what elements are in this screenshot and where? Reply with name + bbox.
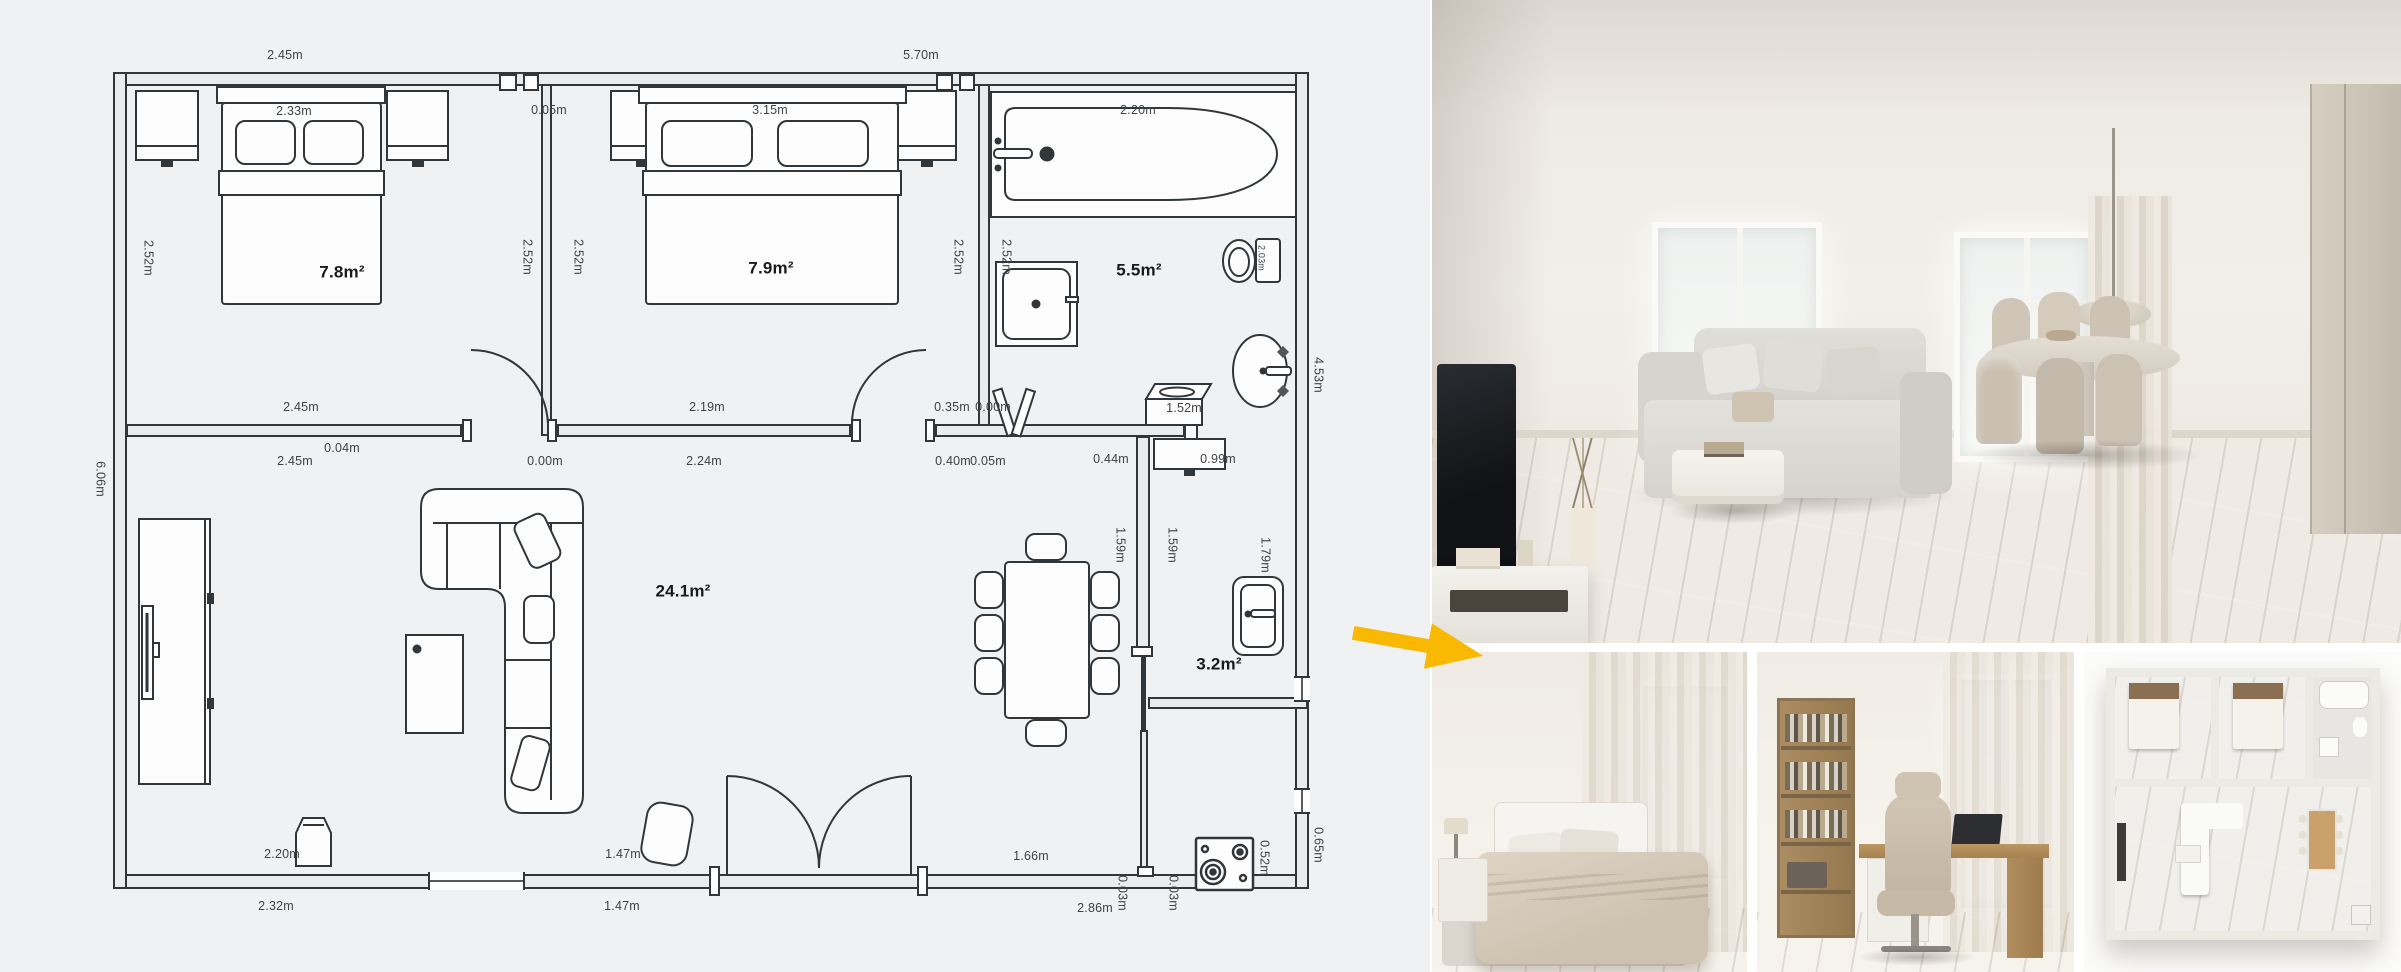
cabinet-seam [2344,84,2346,534]
desk-panel [2007,858,2043,958]
3d-plan-outline [2106,668,2380,940]
dim-label: 0.03m [1167,875,1180,911]
area-label-bedroom2: 7.9m² [748,260,793,277]
dim-label: 2.03m [1257,245,1266,271]
dim-label: 0.00m [975,401,1011,414]
dim-label: 0.35m [934,401,970,414]
dim-label: 2.86m [1077,902,1113,915]
tv-screen [1437,364,1516,577]
area-label-bathroom: 5.5m² [1116,262,1161,279]
shelf-line [1781,890,1851,894]
dim-label: 0.40m [935,455,971,468]
shelf-line [1781,842,1851,846]
dim-label: 0.65m [1312,827,1325,863]
dining-shadow [1972,440,2202,470]
lamp-shade [1444,818,1468,834]
3d-wall [2211,677,2219,781]
chair-seat [1877,890,1955,916]
sofa-pillow [1701,342,1761,395]
table-bowl [2046,330,2076,341]
area-label-wc: 3.2m² [1196,656,1241,673]
dim-label: 2.20m [264,848,300,861]
table-shadow [1668,498,1798,524]
books-stack [1456,548,1500,566]
3d-bed-pillow [2129,683,2179,699]
laptop-screen [1951,814,2002,846]
sofa-arm [1900,372,1952,494]
dim-label: 5.70m [903,49,939,62]
dining-chair [1976,352,2022,444]
3d-coffee-table [2175,845,2201,863]
vase [1570,504,1596,566]
dim-label: 0.03m [1116,875,1129,911]
dim-label: 2.24m [686,455,722,468]
dim-label: 2.52m [1000,239,1013,275]
dim-label: 4.53m [1312,357,1325,393]
dim-label: 2.32m [258,900,294,913]
3d-wall [2115,779,2371,787]
dim-label: 1.79m [1259,537,1272,573]
3d-bed-pillow [2233,683,2283,699]
3d-sofa-chaise [2181,803,2243,829]
toilet-icon [1223,239,1280,282]
dim-label: 0.04m [324,442,360,455]
dim-label: 1.59m [1114,527,1127,563]
storage-box [1787,862,1827,888]
3d-toilet [2353,717,2367,737]
3d-chair [2299,815,2307,823]
3d-appliance [2351,905,2371,925]
dim-label: 0.05m [970,455,1006,468]
tv-unit-icon [139,519,213,784]
sofa-pillow-beige [1732,392,1774,422]
coffee-table [1672,450,1784,496]
3d-wall [2305,677,2313,781]
3d-chair [2299,847,2307,855]
dim-label: 0.00m [527,455,563,468]
photo-bedroom [1432,652,1747,972]
photo-living-room [1432,0,2401,643]
side-table-icon [406,635,463,733]
books-row [1785,714,1847,742]
dim-label: 3.15m [752,104,788,117]
books-row [1785,762,1847,790]
area-label-bedroom1: 7.8m² [319,264,364,281]
books-row [1785,810,1847,838]
tall-cabinet [2310,84,2401,534]
lamp-stem [1454,830,1458,858]
3d-tv-unit [2117,823,2126,881]
chair-back [1885,794,1951,896]
3d-shower [2319,737,2339,757]
dining-chair [2096,354,2142,446]
sink-icon [1233,335,1291,407]
stove-icon [1196,838,1253,890]
chair-headrest [1895,772,1941,800]
photo-home-office [1757,652,2074,972]
dim-label: 1.52m [1166,402,1202,415]
shelf-line [1781,746,1851,750]
dim-label: 0.99m [1200,453,1236,466]
dim-label: 0.05m [531,104,567,117]
dim-label: 2.20m [1120,104,1156,117]
dried-branches [1560,438,1606,508]
sofa-pillow [1826,346,1881,396]
3d-chair [2335,815,2343,823]
screenshot-root: 2.01m [0,0,2401,972]
shelf-line [1781,794,1851,798]
basket-icon [296,818,331,866]
dim-label: 2.52m [952,239,965,275]
dim-label: 1.47m [604,900,640,913]
chair-post [1911,914,1919,948]
photo-3d-floor-plan [2084,652,2401,972]
dim-label: 6.06m [94,461,107,497]
dining-table-icon [975,534,1119,746]
sofa-pillow [1762,339,1825,393]
pendant-cord [2112,128,2115,306]
console-shelf [1450,590,1568,612]
duvet-stripes [1476,874,1708,900]
dim-label: 2.19m [689,401,725,414]
dim-label: 0.44m [1093,453,1129,466]
dim-label: 2.45m [283,401,319,414]
nightstand [1438,858,1488,922]
dim-label: 2.52m [572,239,585,275]
3d-chair [2335,847,2343,855]
floor-plan-panel: 2.01m [0,0,1430,972]
dim-label: 2.45m [267,49,303,62]
wc-sink-icon [1233,577,1283,655]
3d-bathtub [2319,681,2369,709]
books-on-table [1704,442,1744,454]
dim-label: 1.47m [605,848,641,861]
dim-label: 2.52m [521,239,534,275]
3d-dining-table [2307,809,2337,871]
candle [1518,540,1533,566]
dim-label: 1.66m [1013,850,1049,863]
dim-label: 1.59m [1166,527,1179,563]
dim-label: 0.52m [1258,840,1271,876]
dim-label: 2.52m [142,240,155,276]
chair-shadow [1857,948,1977,966]
area-label-living: 24.1m² [655,583,710,600]
armchair-icon [639,800,695,867]
3d-chair [2299,831,2307,839]
duvet [1476,852,1708,964]
3d-chair [2335,831,2343,839]
dim-label: 2.45m [277,455,313,468]
floor-plan-furniture [0,0,1430,972]
dim-label: 2.33m [276,105,312,118]
